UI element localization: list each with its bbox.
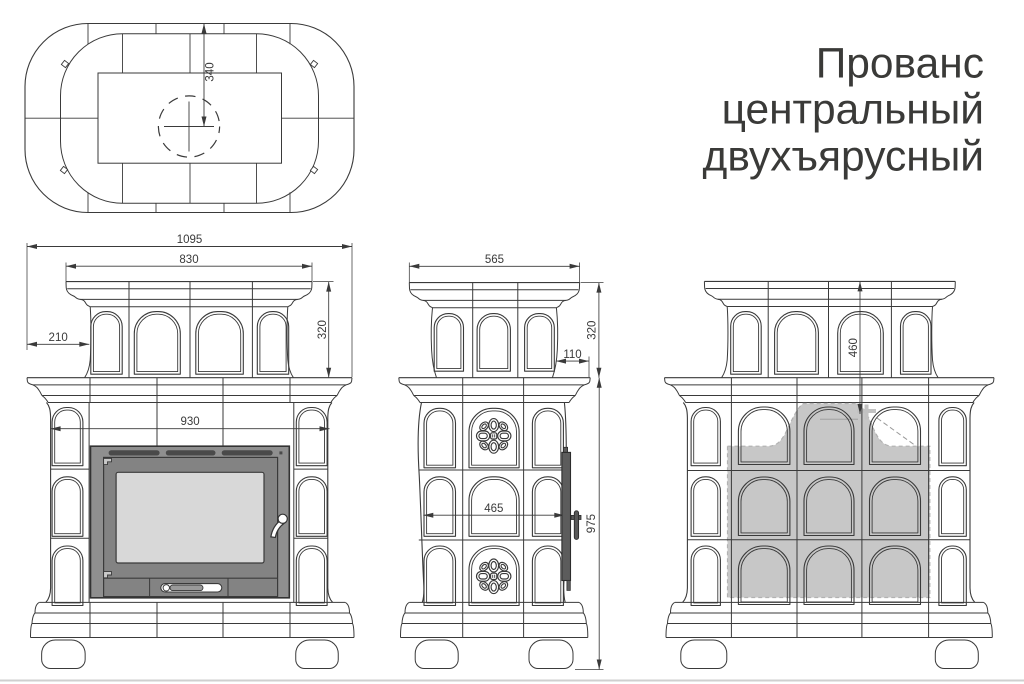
svg-text:110: 110 [563, 349, 581, 361]
svg-text:465: 465 [484, 503, 503, 515]
svg-text:340: 340 [205, 62, 217, 81]
svg-text:Прованс: Прованс [816, 40, 984, 87]
svg-text:975: 975 [586, 514, 598, 533]
svg-text:460: 460 [848, 338, 860, 357]
svg-text:830: 830 [179, 254, 198, 266]
svg-text:565: 565 [485, 254, 504, 266]
svg-text:320: 320 [587, 321, 599, 340]
svg-text:1095: 1095 [177, 234, 203, 246]
svg-text:центральный: центральный [722, 86, 984, 133]
svg-text:930: 930 [180, 416, 199, 428]
svg-text:320: 320 [317, 320, 329, 339]
svg-text:210: 210 [49, 332, 68, 344]
svg-text:двухъярусный: двухъярусный [703, 133, 984, 180]
